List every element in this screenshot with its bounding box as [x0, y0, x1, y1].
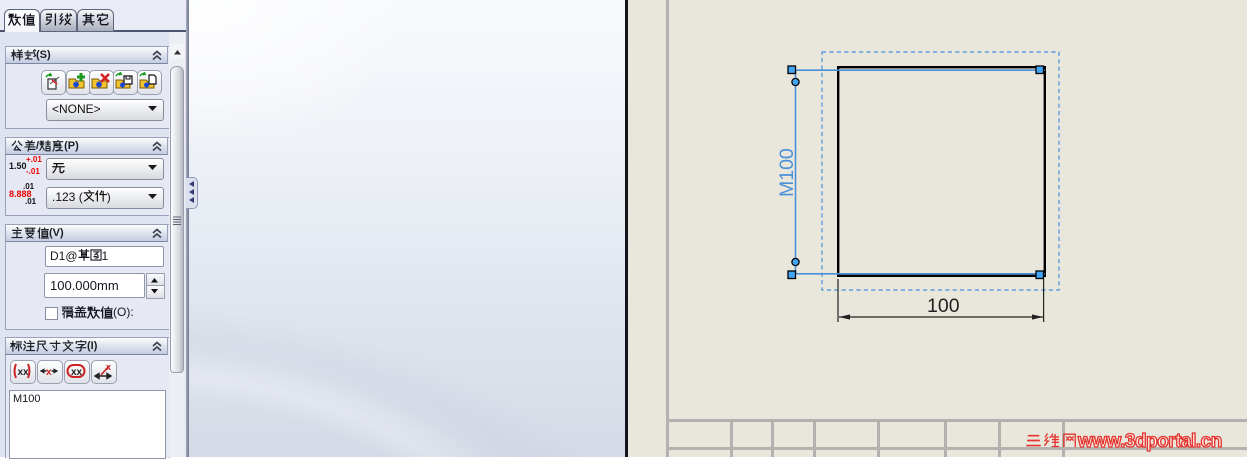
svg-text:x: x: [106, 362, 111, 372]
svg-text:100: 100: [927, 295, 960, 317]
svg-text:xx: xx: [71, 367, 83, 378]
svg-text:x: x: [46, 367, 52, 378]
svg-text:M100: M100: [776, 148, 798, 197]
svg-text:xx: xx: [18, 367, 30, 378]
